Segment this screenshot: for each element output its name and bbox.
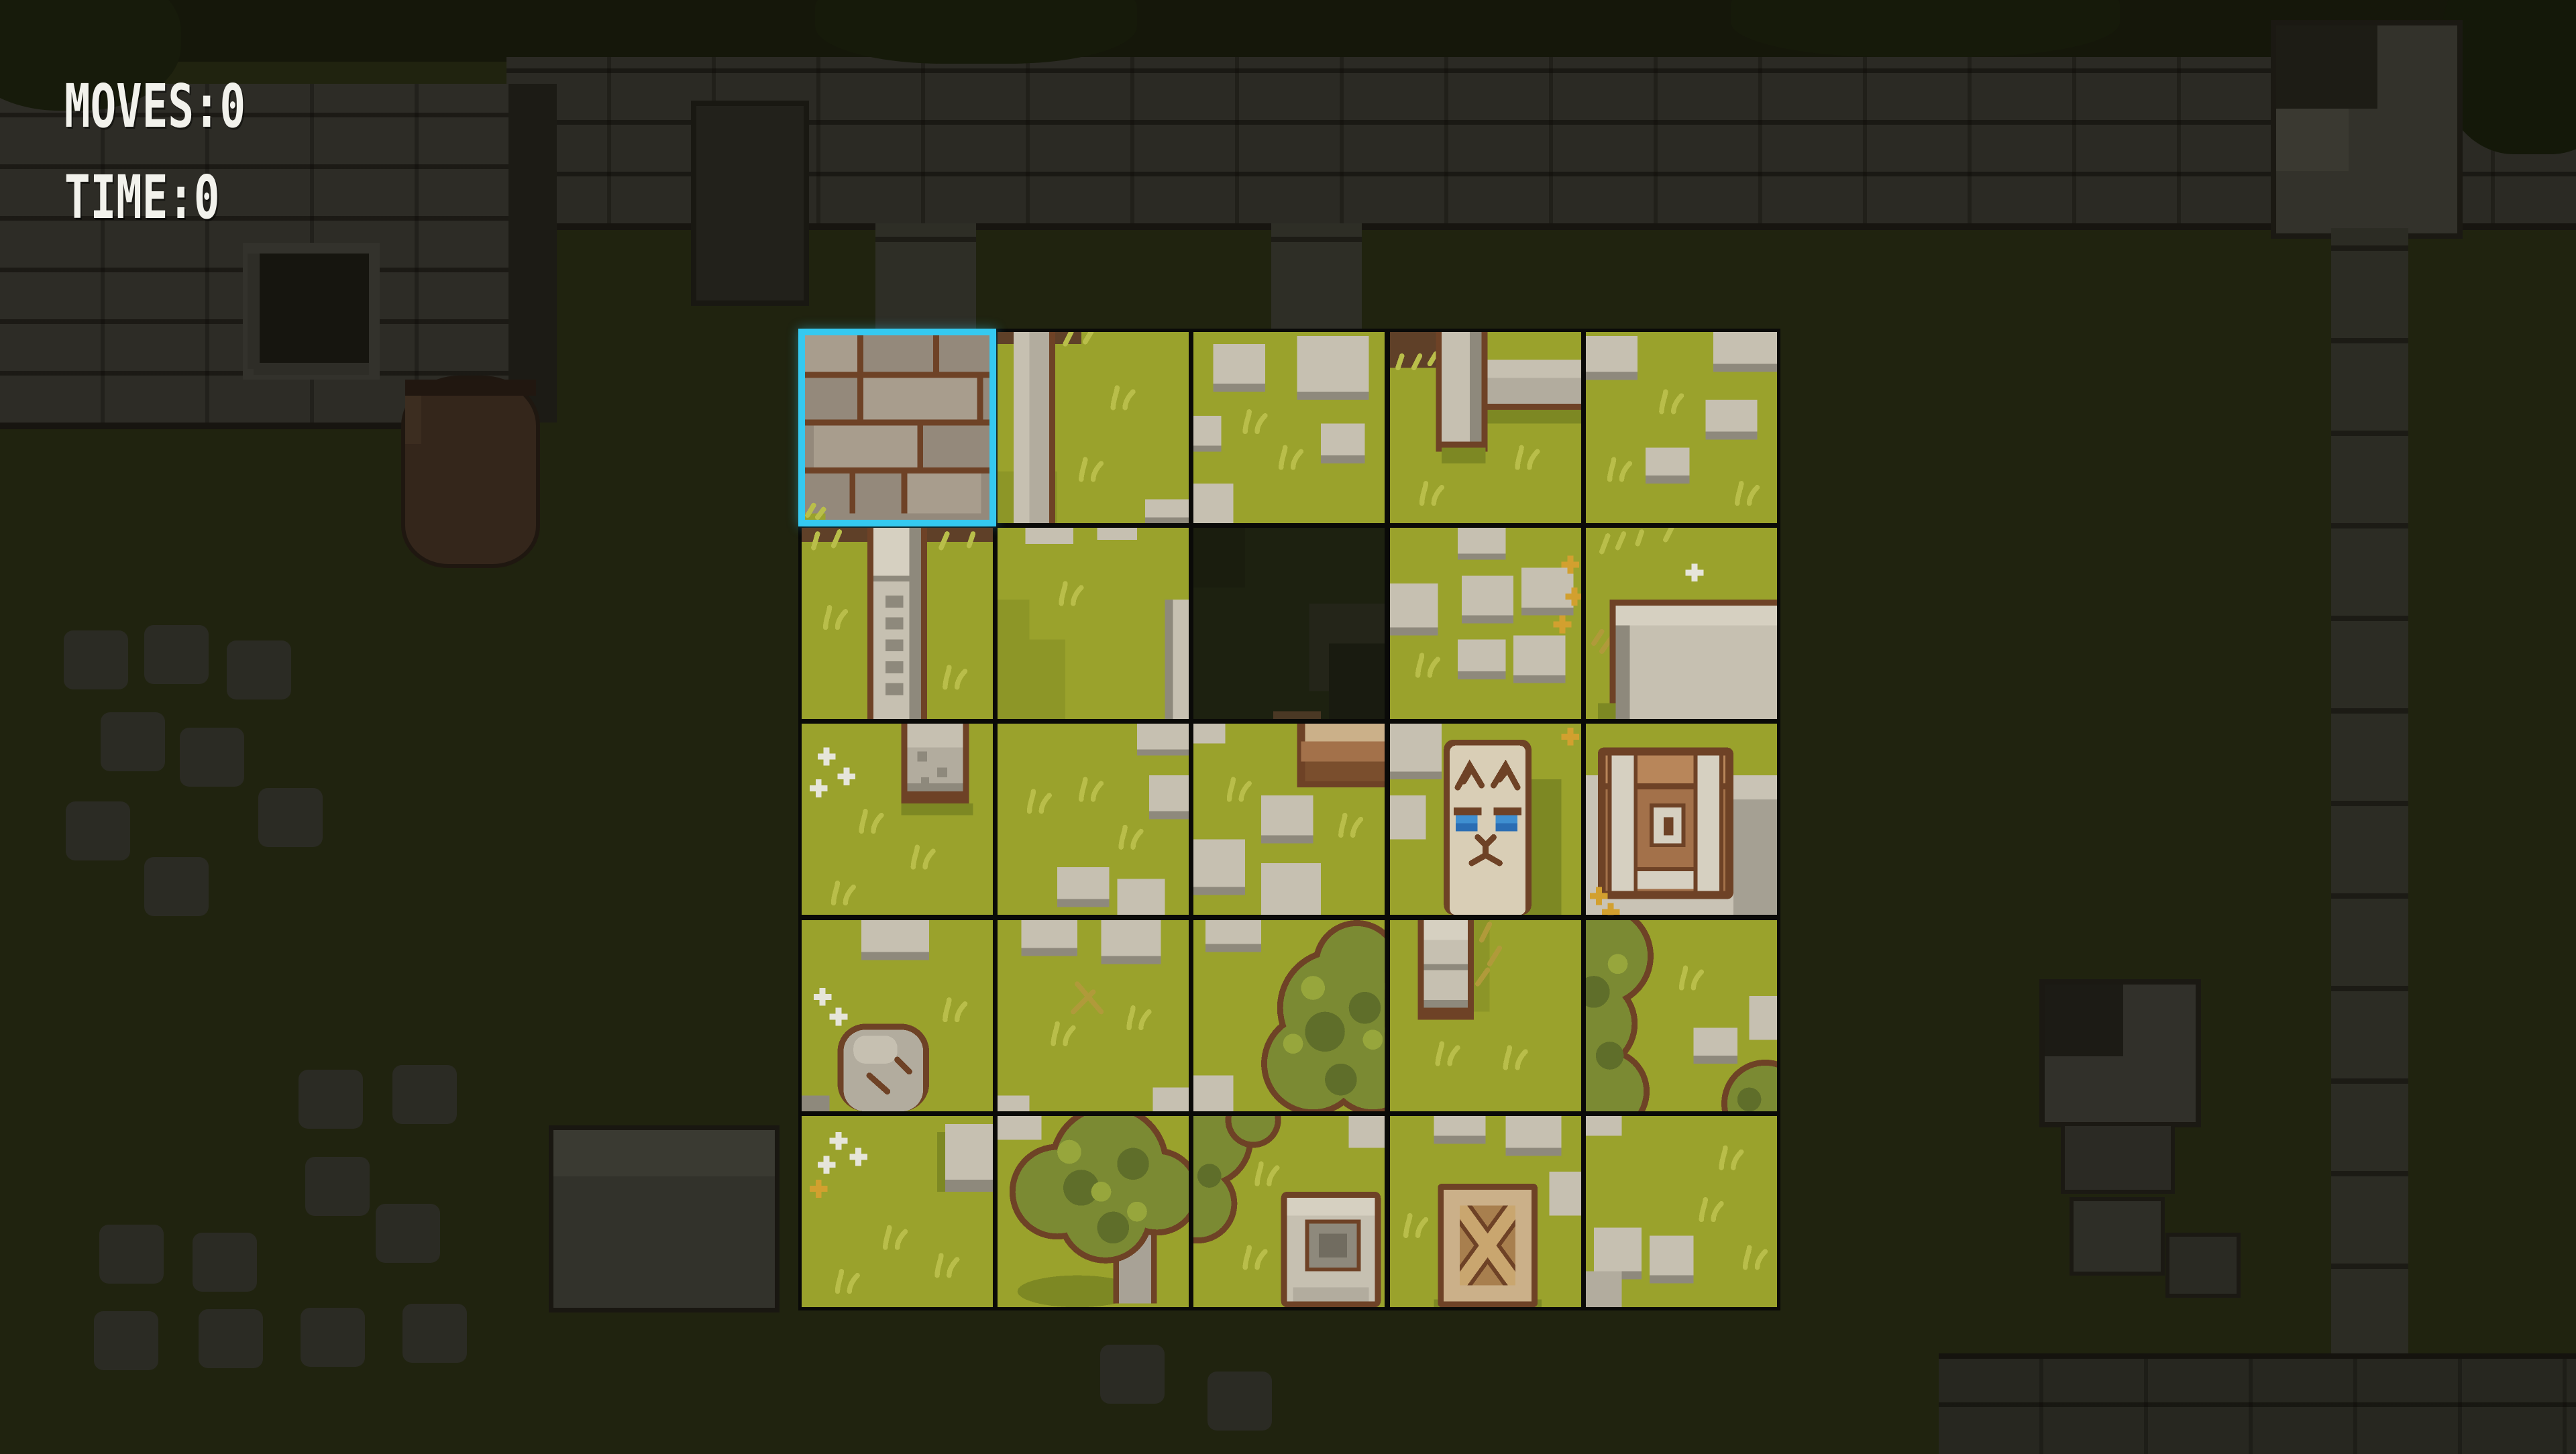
tile-art: [1390, 724, 1581, 915]
bg-wall-middle: [506, 57, 2576, 230]
tile-art: [1390, 1116, 1581, 1307]
bg-alley: [508, 84, 557, 423]
bg-path-stone: [392, 1065, 457, 1124]
bg-monument-base: [2061, 1122, 2175, 1194]
puzzle-tile-grass-stones-twig[interactable]: [998, 920, 1189, 1111]
bg-path-stone: [301, 1308, 365, 1367]
puzzle-empty-slot: [1193, 528, 1385, 719]
bg-path-stone: [402, 1304, 467, 1363]
tile-art: [1586, 724, 1777, 915]
bg-path-stone: [144, 625, 209, 684]
puzzle-tile-grass-tree-right[interactable]: [1193, 920, 1385, 1111]
puzzle-tile-grass-plain[interactable]: [998, 528, 1189, 719]
puzzle-tile-grass-scattered-stones[interactable]: [998, 724, 1189, 915]
puzzle-tile-grass-wall-edge[interactable]: [998, 332, 1189, 523]
bg-path: [2331, 228, 2408, 1449]
tile-art: [998, 528, 1189, 719]
time-label: TIME:: [64, 162, 194, 232]
bg-path-stone: [101, 712, 165, 771]
tile-art: [802, 920, 993, 1111]
tile-art: [1193, 332, 1385, 523]
bg-stone-slab: [549, 1125, 780, 1312]
puzzle-tile-tree[interactable]: [998, 1116, 1189, 1307]
bg-path-stone: [1207, 1372, 1272, 1431]
tile-art: [1586, 528, 1777, 719]
bg-path-stone: [299, 1070, 363, 1129]
bg-well-opening: [2276, 25, 2377, 109]
puzzle-tile-grass-path-crossing[interactable]: [1390, 528, 1581, 719]
bg-path: [875, 223, 976, 329]
bg-path-stone: [227, 640, 291, 700]
tile-art: [802, 332, 993, 523]
bg-path-stone: [258, 788, 323, 847]
time-value: 0: [194, 162, 220, 232]
bg-tree-canopy: [1731, 0, 2120, 57]
time-counter: TIME:0: [64, 162, 219, 232]
puzzle-tile-grass-stone-slab[interactable]: [1586, 528, 1777, 719]
tile-art: [1586, 920, 1777, 1111]
puzzle-tile-grass-stone-path[interactable]: [1586, 332, 1777, 523]
puzzle-tile-stone-brick-wall[interactable]: [802, 332, 993, 523]
tile-art: [1390, 528, 1581, 719]
moves-label: MOVES:: [64, 71, 219, 141]
bg-path-stone: [94, 1311, 158, 1370]
puzzle-tile-grass-post-and-ledge[interactable]: [1390, 332, 1581, 523]
bg-barrel-band: [405, 380, 536, 388]
puzzle-board: [798, 329, 1780, 1310]
bg-wall-bottom: [1939, 1353, 2576, 1454]
moves-counter: MOVES:0: [64, 71, 246, 141]
bg-path: [1271, 223, 1362, 329]
puzzle-tile-grass-flowers[interactable]: [802, 1116, 993, 1307]
tile-art: [998, 1116, 1189, 1307]
bg-monument: [2039, 979, 2201, 1127]
puzzle-tile-grass-wooden-steps[interactable]: [1193, 724, 1385, 915]
tile-art: [1390, 920, 1581, 1111]
bg-barrel-plank: [405, 396, 421, 444]
bg-path-stone: [144, 857, 209, 916]
puzzle-tile-grass-pillar-base-flowers[interactable]: [802, 724, 993, 915]
bg-path-stone: [99, 1225, 164, 1284]
puzzle-tile-treasure-chest[interactable]: [1586, 724, 1777, 915]
tile-art: [1193, 724, 1385, 915]
bg-tree-canopy: [815, 0, 1137, 64]
bg-doorway: [691, 101, 809, 306]
bg-top-treeline: [0, 0, 2576, 62]
tile-art: [998, 332, 1189, 523]
tile-art: [998, 724, 1189, 915]
puzzle-tile-cat-statue[interactable]: [1390, 724, 1581, 915]
bg-monument-inset: [2045, 985, 2123, 1056]
bg-window-bar: [254, 363, 369, 375]
tile-art: [802, 528, 993, 719]
tile-art: [1586, 332, 1777, 523]
puzzle-tile-wooden-crate[interactable]: [1390, 1116, 1581, 1307]
bg-barrel: [401, 376, 540, 568]
tile-art: [1586, 1116, 1777, 1307]
puzzle-tile-grass-stone-monument[interactable]: [1193, 1116, 1385, 1307]
puzzle-tile-grass-post-top[interactable]: [1390, 920, 1581, 1111]
bg-window-bar: [248, 254, 260, 369]
tile-art: [1193, 1116, 1385, 1307]
bg-well-base: [2276, 109, 2349, 171]
tile-art: [802, 724, 993, 915]
puzzle-tile-grass-engraved-pillar[interactable]: [802, 528, 993, 719]
tile-art: [802, 1116, 993, 1307]
bg-stone-block: [2070, 1197, 2165, 1276]
bg-path-stone: [66, 801, 130, 860]
bg-path-stone: [193, 1233, 257, 1292]
puzzle-tile-grass-tree-left[interactable]: [1586, 920, 1777, 1111]
bg-window: [243, 243, 380, 380]
bg-barrel-band: [405, 388, 536, 396]
bg-path-stone: [1100, 1345, 1165, 1404]
bg-path-stone: [64, 630, 128, 689]
bg-stone-block: [2165, 1233, 2241, 1298]
bg-well: [2271, 20, 2463, 239]
tile-art: [1193, 528, 1385, 719]
bg-path-stone: [376, 1204, 440, 1263]
puzzle-tile-grass-path-corner[interactable]: [1586, 1116, 1777, 1307]
tile-art: [1193, 920, 1385, 1111]
bg-path-stone: [305, 1157, 370, 1216]
bg-path-stone: [180, 728, 244, 787]
bg-path-stone: [199, 1309, 263, 1368]
tile-art: [998, 920, 1189, 1111]
tile-art: [1390, 332, 1581, 523]
puzzle-tile-grass-stone-patches[interactable]: [1193, 332, 1385, 523]
moves-value: 0: [219, 71, 246, 141]
puzzle-tile-grass-boulder[interactable]: [802, 920, 993, 1111]
